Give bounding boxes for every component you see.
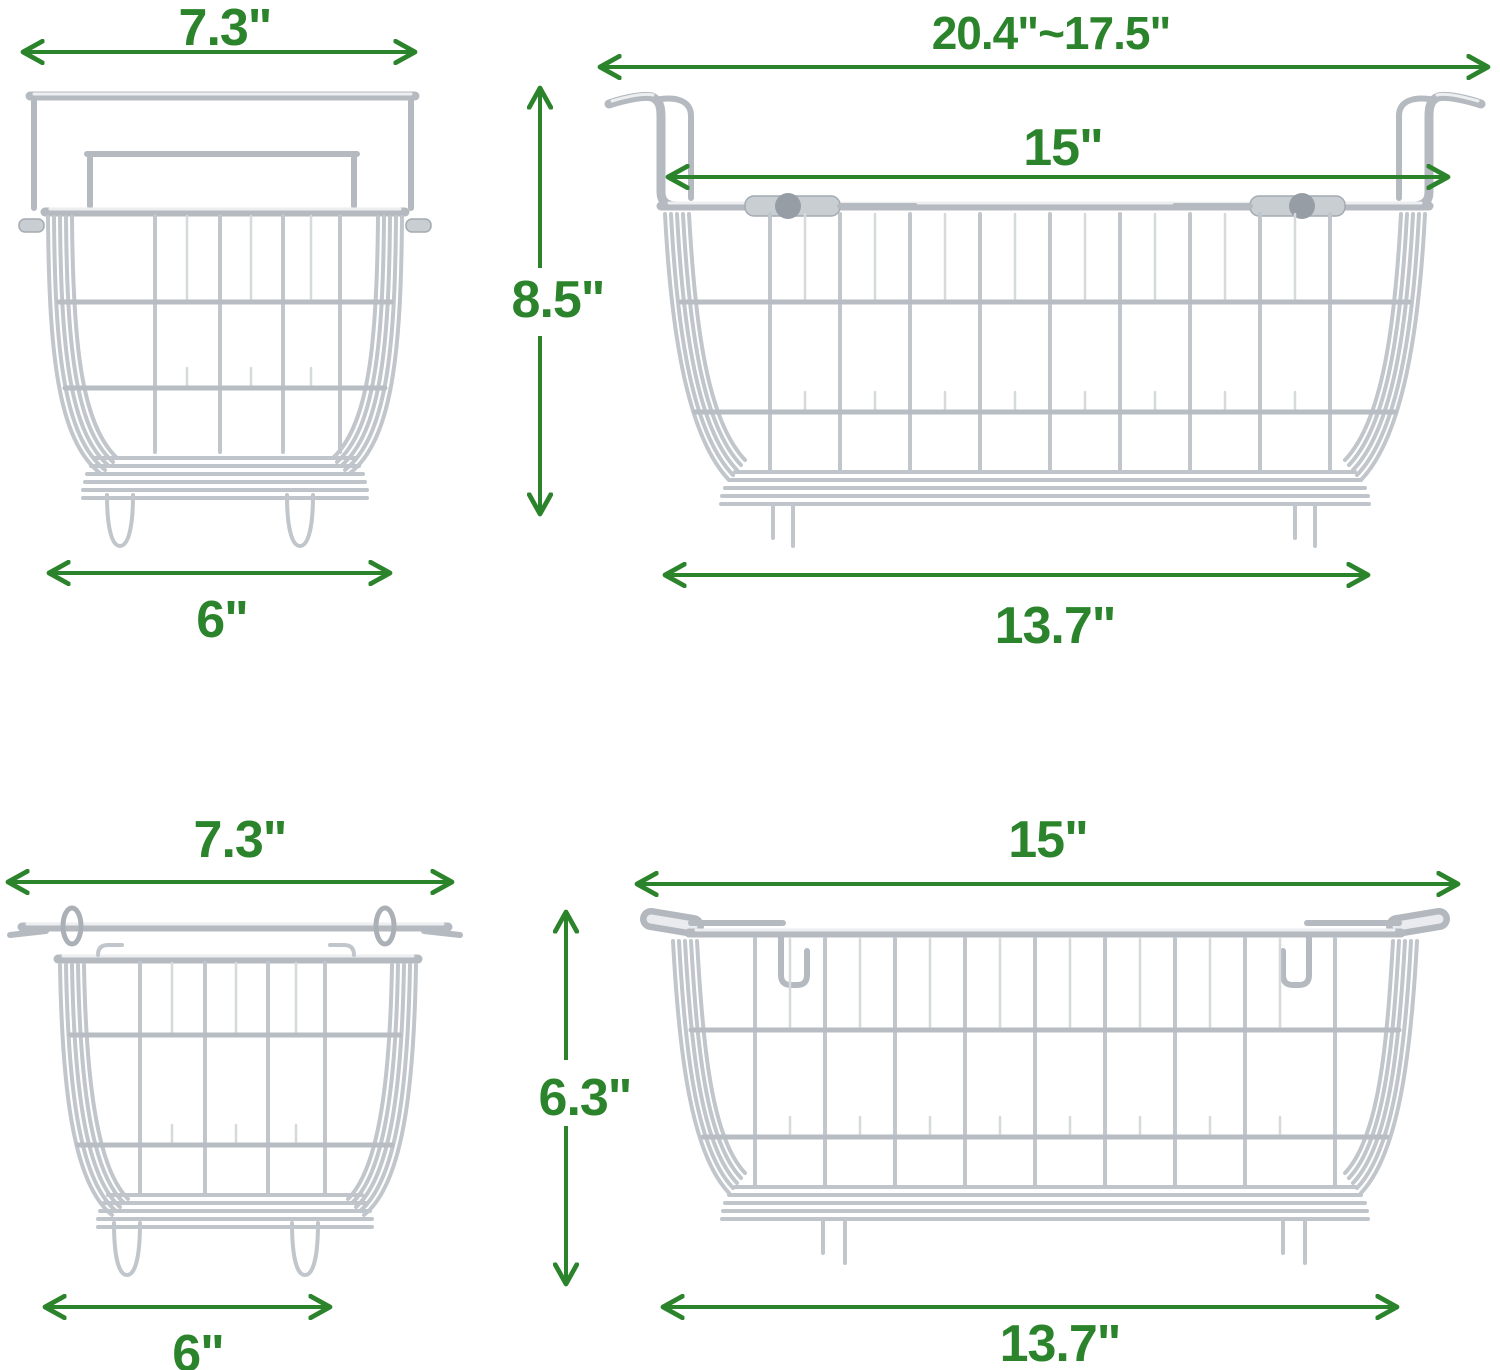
label-bottom-right-bottom-width: 13.7" xyxy=(1000,1318,1121,1370)
label-top-right-inner-width: 15" xyxy=(1023,122,1103,174)
label-bottom-right-top-width: 15" xyxy=(1008,814,1088,866)
label-bottom-right-height: 6.3" xyxy=(539,1072,632,1124)
label-top-left-bottom-width: 6" xyxy=(196,594,248,646)
label-bottom-left-top-width: 7.3" xyxy=(194,814,287,866)
dimension-arrows-layer xyxy=(0,0,1500,1370)
label-bottom-left-bottom-width: 6" xyxy=(172,1328,224,1370)
label-top-left-top-width: 7.3" xyxy=(179,2,272,54)
label-top-right-bottom-width: 13.7" xyxy=(995,600,1116,652)
label-top-right-hook-span: 20.4"~17.5" xyxy=(932,10,1171,56)
label-top-right-height: 8.5" xyxy=(512,274,605,326)
product-dimension-diagram: 7.3" 6" 20.4"~17.5" 15" 8.5" 13.7" 7.3" … xyxy=(0,0,1500,1370)
